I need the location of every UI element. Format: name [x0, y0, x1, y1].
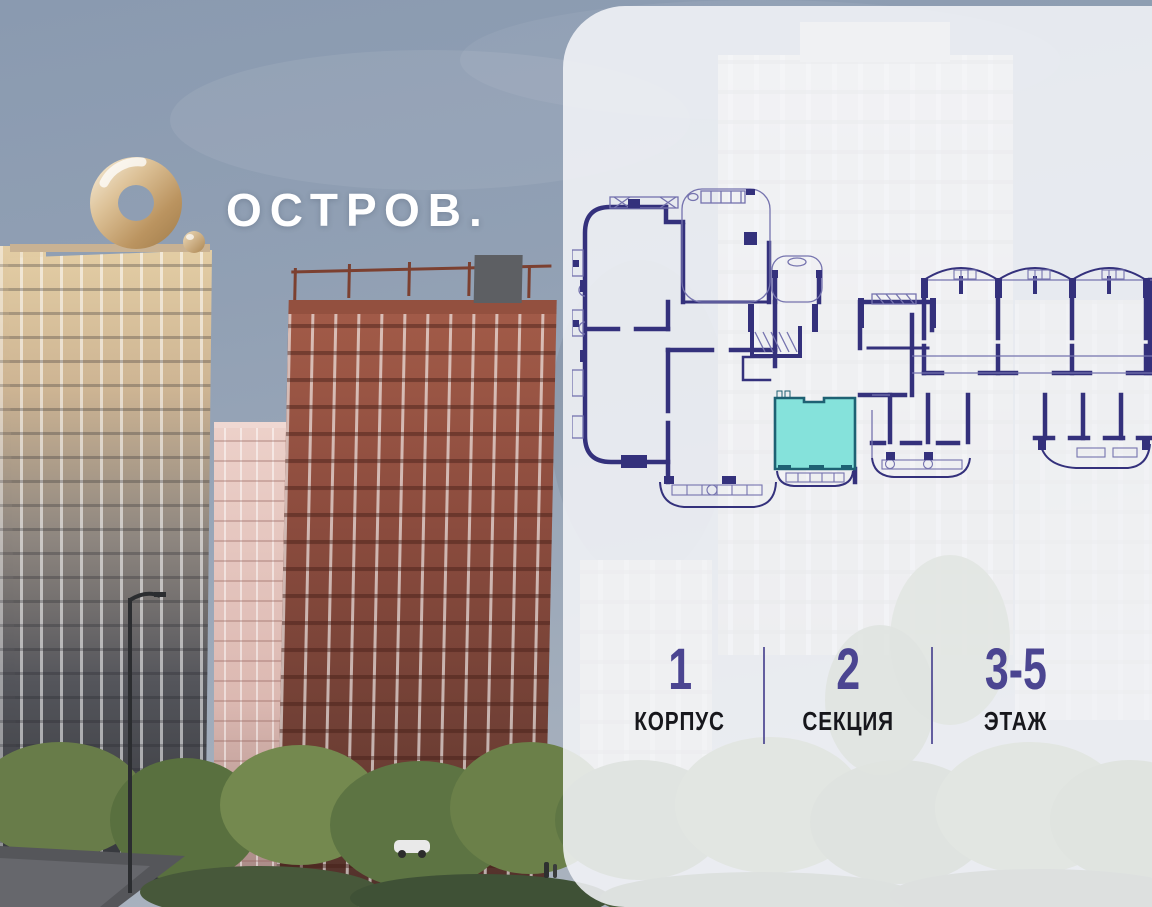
- etazh-label: ЭТАЖ: [984, 706, 1047, 737]
- korpus-value: 1: [668, 640, 692, 700]
- divider: [763, 647, 765, 744]
- brand-logo: ОСТРОВ.: [84, 152, 504, 262]
- sektsiya-value: 2: [836, 640, 860, 700]
- unit-info-row: 1 КОРПУС 2 СЕКЦИЯ 3-5 ЭТАЖ: [600, 640, 1100, 750]
- ostrov-ring-icon: [84, 153, 212, 261]
- divider: [931, 647, 933, 744]
- brand-name: ОСТРОВ.: [226, 183, 490, 237]
- info-sektsiya: 2 СЕКЦИЯ: [768, 640, 928, 750]
- info-etazh: 3-5 ЭТАЖ: [936, 640, 1096, 750]
- highlighted-unit[interactable]: [775, 391, 855, 470]
- korpus-label: КОРПУС: [635, 706, 725, 737]
- info-korpus: 1 КОРПУС: [600, 640, 760, 750]
- sektsiya-label: СЕКЦИЯ: [802, 706, 893, 737]
- floor-plan[interactable]: [572, 180, 1152, 525]
- etazh-value: 3-5: [985, 640, 1047, 700]
- real-estate-card: ОСТРОВ.: [0, 0, 1152, 907]
